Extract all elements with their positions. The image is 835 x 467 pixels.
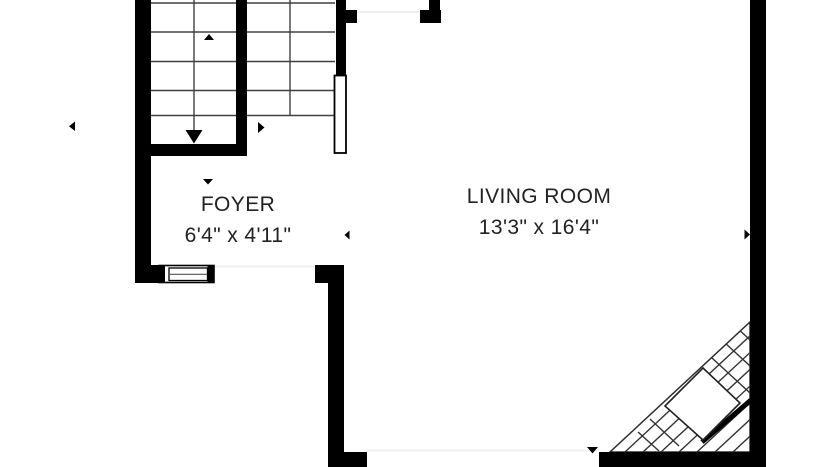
wall-right (750, 0, 766, 467)
wall-mid-vertical (328, 265, 344, 452)
window-cap-left (159, 266, 165, 283)
wall-bottom (599, 452, 766, 467)
wall-left-foot (135, 265, 159, 283)
room-name-living-room: LIVING ROOM (467, 181, 611, 212)
room-dimensions-foyer: 6'4" x 4'11" (185, 220, 292, 251)
wall-top-right-stub (429, 0, 440, 10)
corner-fireplace (610, 322, 751, 452)
wall-mid-vertical-foot (328, 452, 367, 467)
wall-top-door-right-jamb (420, 10, 441, 23)
floor-plan-drawing (0, 0, 835, 467)
arrow-right-icon (745, 230, 751, 240)
stairs-down-arrow-icon (186, 130, 203, 144)
arrow-right-icon (258, 122, 265, 133)
room-label-foyer: FOYER 6'4" x 4'11" (185, 189, 292, 251)
fireplace-hearth-triangle (610, 322, 750, 452)
wall-left (135, 0, 151, 266)
floor-plan: FOYER 6'4" x 4'11" LIVING ROOM 13'3" x 1… (0, 0, 835, 467)
arrow-down-icon (203, 179, 213, 185)
wall-stair-divider (236, 0, 247, 145)
wall-stair-bottom (135, 144, 247, 156)
wall-top-door-left-jamb (336, 10, 357, 23)
open-door-leaf (335, 76, 347, 154)
stair-run-left (151, 0, 236, 131)
measure-markers (69, 122, 750, 454)
arrow-left-icon (69, 122, 75, 132)
room-name-foyer: FOYER (185, 189, 292, 220)
front-window (159, 266, 214, 283)
stair-run-right (247, 0, 335, 116)
arrow-left-icon (345, 231, 350, 240)
room-dimensions-living-room: 13'3" x 16'4" (467, 212, 611, 243)
room-label-living-room: LIVING ROOM 13'3" x 16'4" (467, 181, 611, 243)
window-cap-right (208, 266, 215, 283)
stairs-up-marker-icon (204, 34, 214, 40)
